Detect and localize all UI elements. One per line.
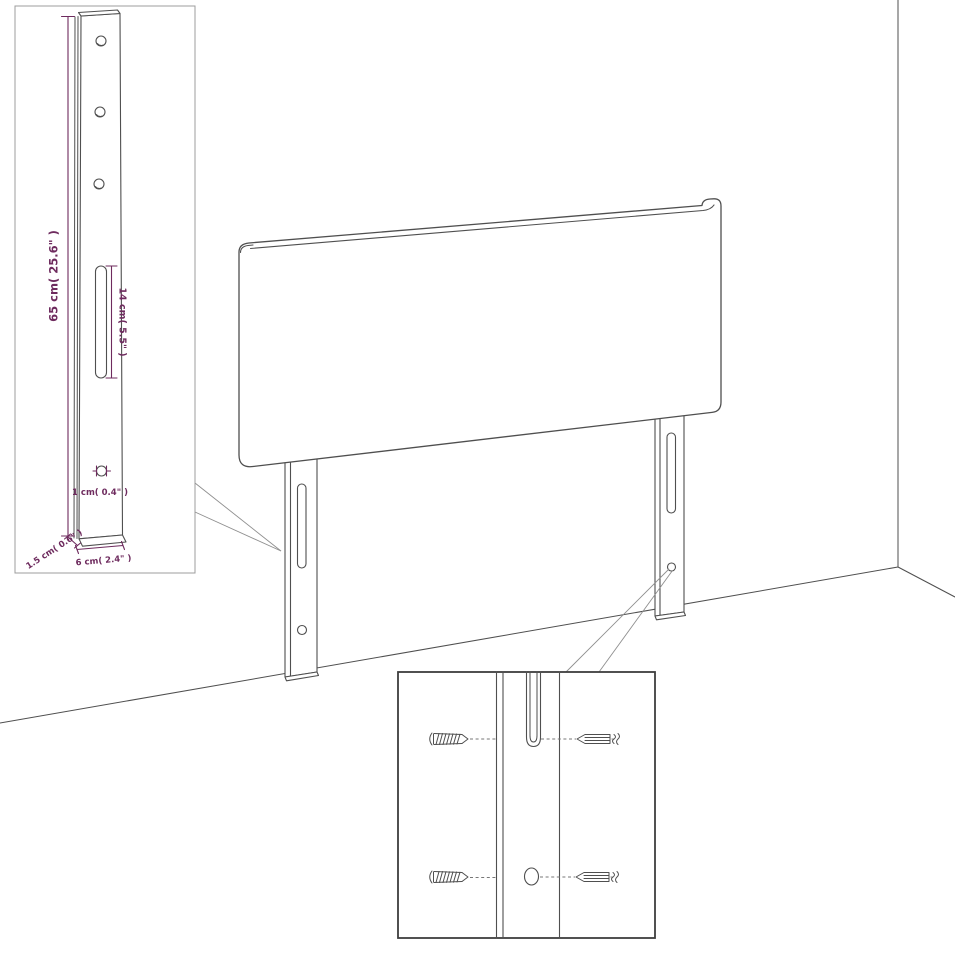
post-drawing — [74, 10, 126, 546]
callout-lines — [195, 483, 673, 672]
post-front-face — [79, 14, 123, 539]
panel-face — [239, 199, 721, 467]
left-leg-body — [285, 451, 317, 677]
diagram-canvas: 65 cm( 25.6" ) 14 cm( 5.5" ) 1 cm( 0.4" … — [0, 0, 955, 955]
headboard-dimension-diagram: 65 cm( 25.6" ) 14 cm( 5.5" ) 1 cm( 0.4" … — [0, 0, 955, 955]
floor-line-right — [898, 567, 955, 597]
detail-panel — [398, 672, 655, 938]
detail-callout-line-left — [566, 569, 669, 672]
inset-panel: 65 cm( 25.6" ) 14 cm( 5.5" ) 1 cm( 0.4" … — [15, 6, 195, 573]
hole-dimension-label: 1 cm( 0.4" ) — [72, 488, 128, 498]
inset-callout-line-lower — [195, 512, 281, 551]
left-leg — [285, 451, 319, 681]
inset-callout-line-upper — [195, 483, 281, 551]
slot-dimension-label: 14 cm( 5.5" ) — [117, 287, 128, 356]
height-dimension-label: 65 cm( 25.6" ) — [47, 230, 61, 322]
detail-callout-line-right — [599, 571, 673, 673]
headboard-panel — [239, 199, 721, 467]
